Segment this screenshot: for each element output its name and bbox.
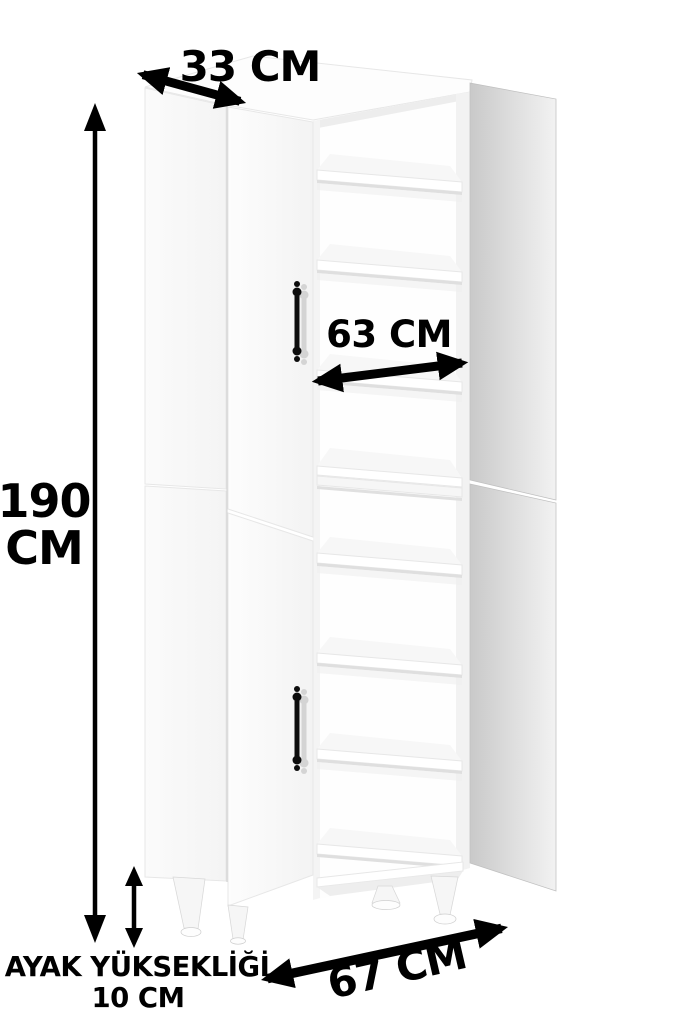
right-door-lower [470,484,556,891]
leg-height-arrowhead-bottom [125,928,143,948]
open-door-upper-panel [228,107,313,537]
open-door-upper [228,107,313,537]
height-unit: CM [5,521,83,575]
leg-height-value: 10 CM [92,982,185,1014]
right-door-upper [470,83,556,500]
leg-front-right [431,876,458,924]
interior-left-wall [313,120,320,900]
left-door-upper [145,88,226,489]
cabinet-interior [313,92,470,900]
open-door-lower-panel [228,513,313,906]
height-arrowhead-bottom [84,915,106,943]
height-value: 190 [0,474,91,528]
leg-front-left [173,877,205,937]
height-dimension: 190 CM [0,103,106,943]
height-arrowhead-top [84,103,106,131]
width-dimension: 67 CM [268,928,502,1008]
width-label: 67 CM [323,929,471,1008]
shelf-width-label: 63 CM [326,313,452,356]
left-door-lower [145,486,226,881]
leg-height-arrowhead-top [125,866,143,886]
depth-label: 33 CM [180,42,321,91]
open-door-lower [228,513,313,906]
cabinet-illustration [145,56,556,944]
cabinet-dimension-figure: 33 CM 190 CM 63 CM AYAK YÜKSEKLİĞİ 10 CM… [0,0,682,1024]
leg-height-title: AYAK YÜKSEKLİĞİ [5,949,270,983]
leg-door-left [228,905,248,944]
left-door-column [145,88,227,882]
product-diagram: 33 CM 190 CM 63 CM AYAK YÜKSEKLİĞİ 10 CM… [0,0,682,1024]
